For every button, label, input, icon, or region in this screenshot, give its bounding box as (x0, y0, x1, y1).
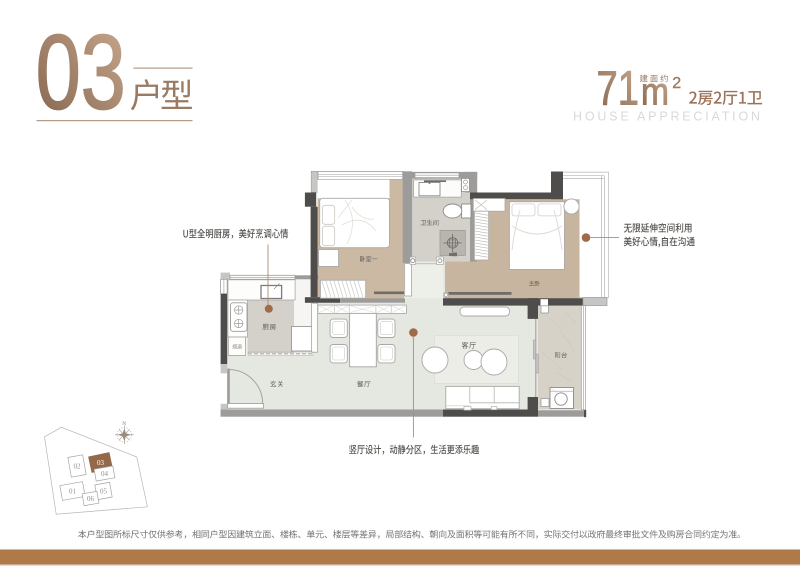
svg-text:N: N (122, 421, 126, 427)
svg-text:03: 03 (97, 459, 105, 467)
svg-text:05: 05 (100, 488, 108, 496)
svg-text:HOUSE APPRECIATION: HOUSE APPRECIATION (573, 110, 760, 124)
svg-text:2: 2 (672, 75, 681, 92)
svg-text:03: 03 (36, 14, 126, 132)
svg-text:02: 02 (74, 463, 82, 471)
svg-text:71: 71 (597, 63, 640, 116)
svg-text:01: 01 (69, 488, 77, 496)
svg-text:04: 04 (101, 470, 109, 478)
svg-text:06: 06 (87, 495, 95, 503)
